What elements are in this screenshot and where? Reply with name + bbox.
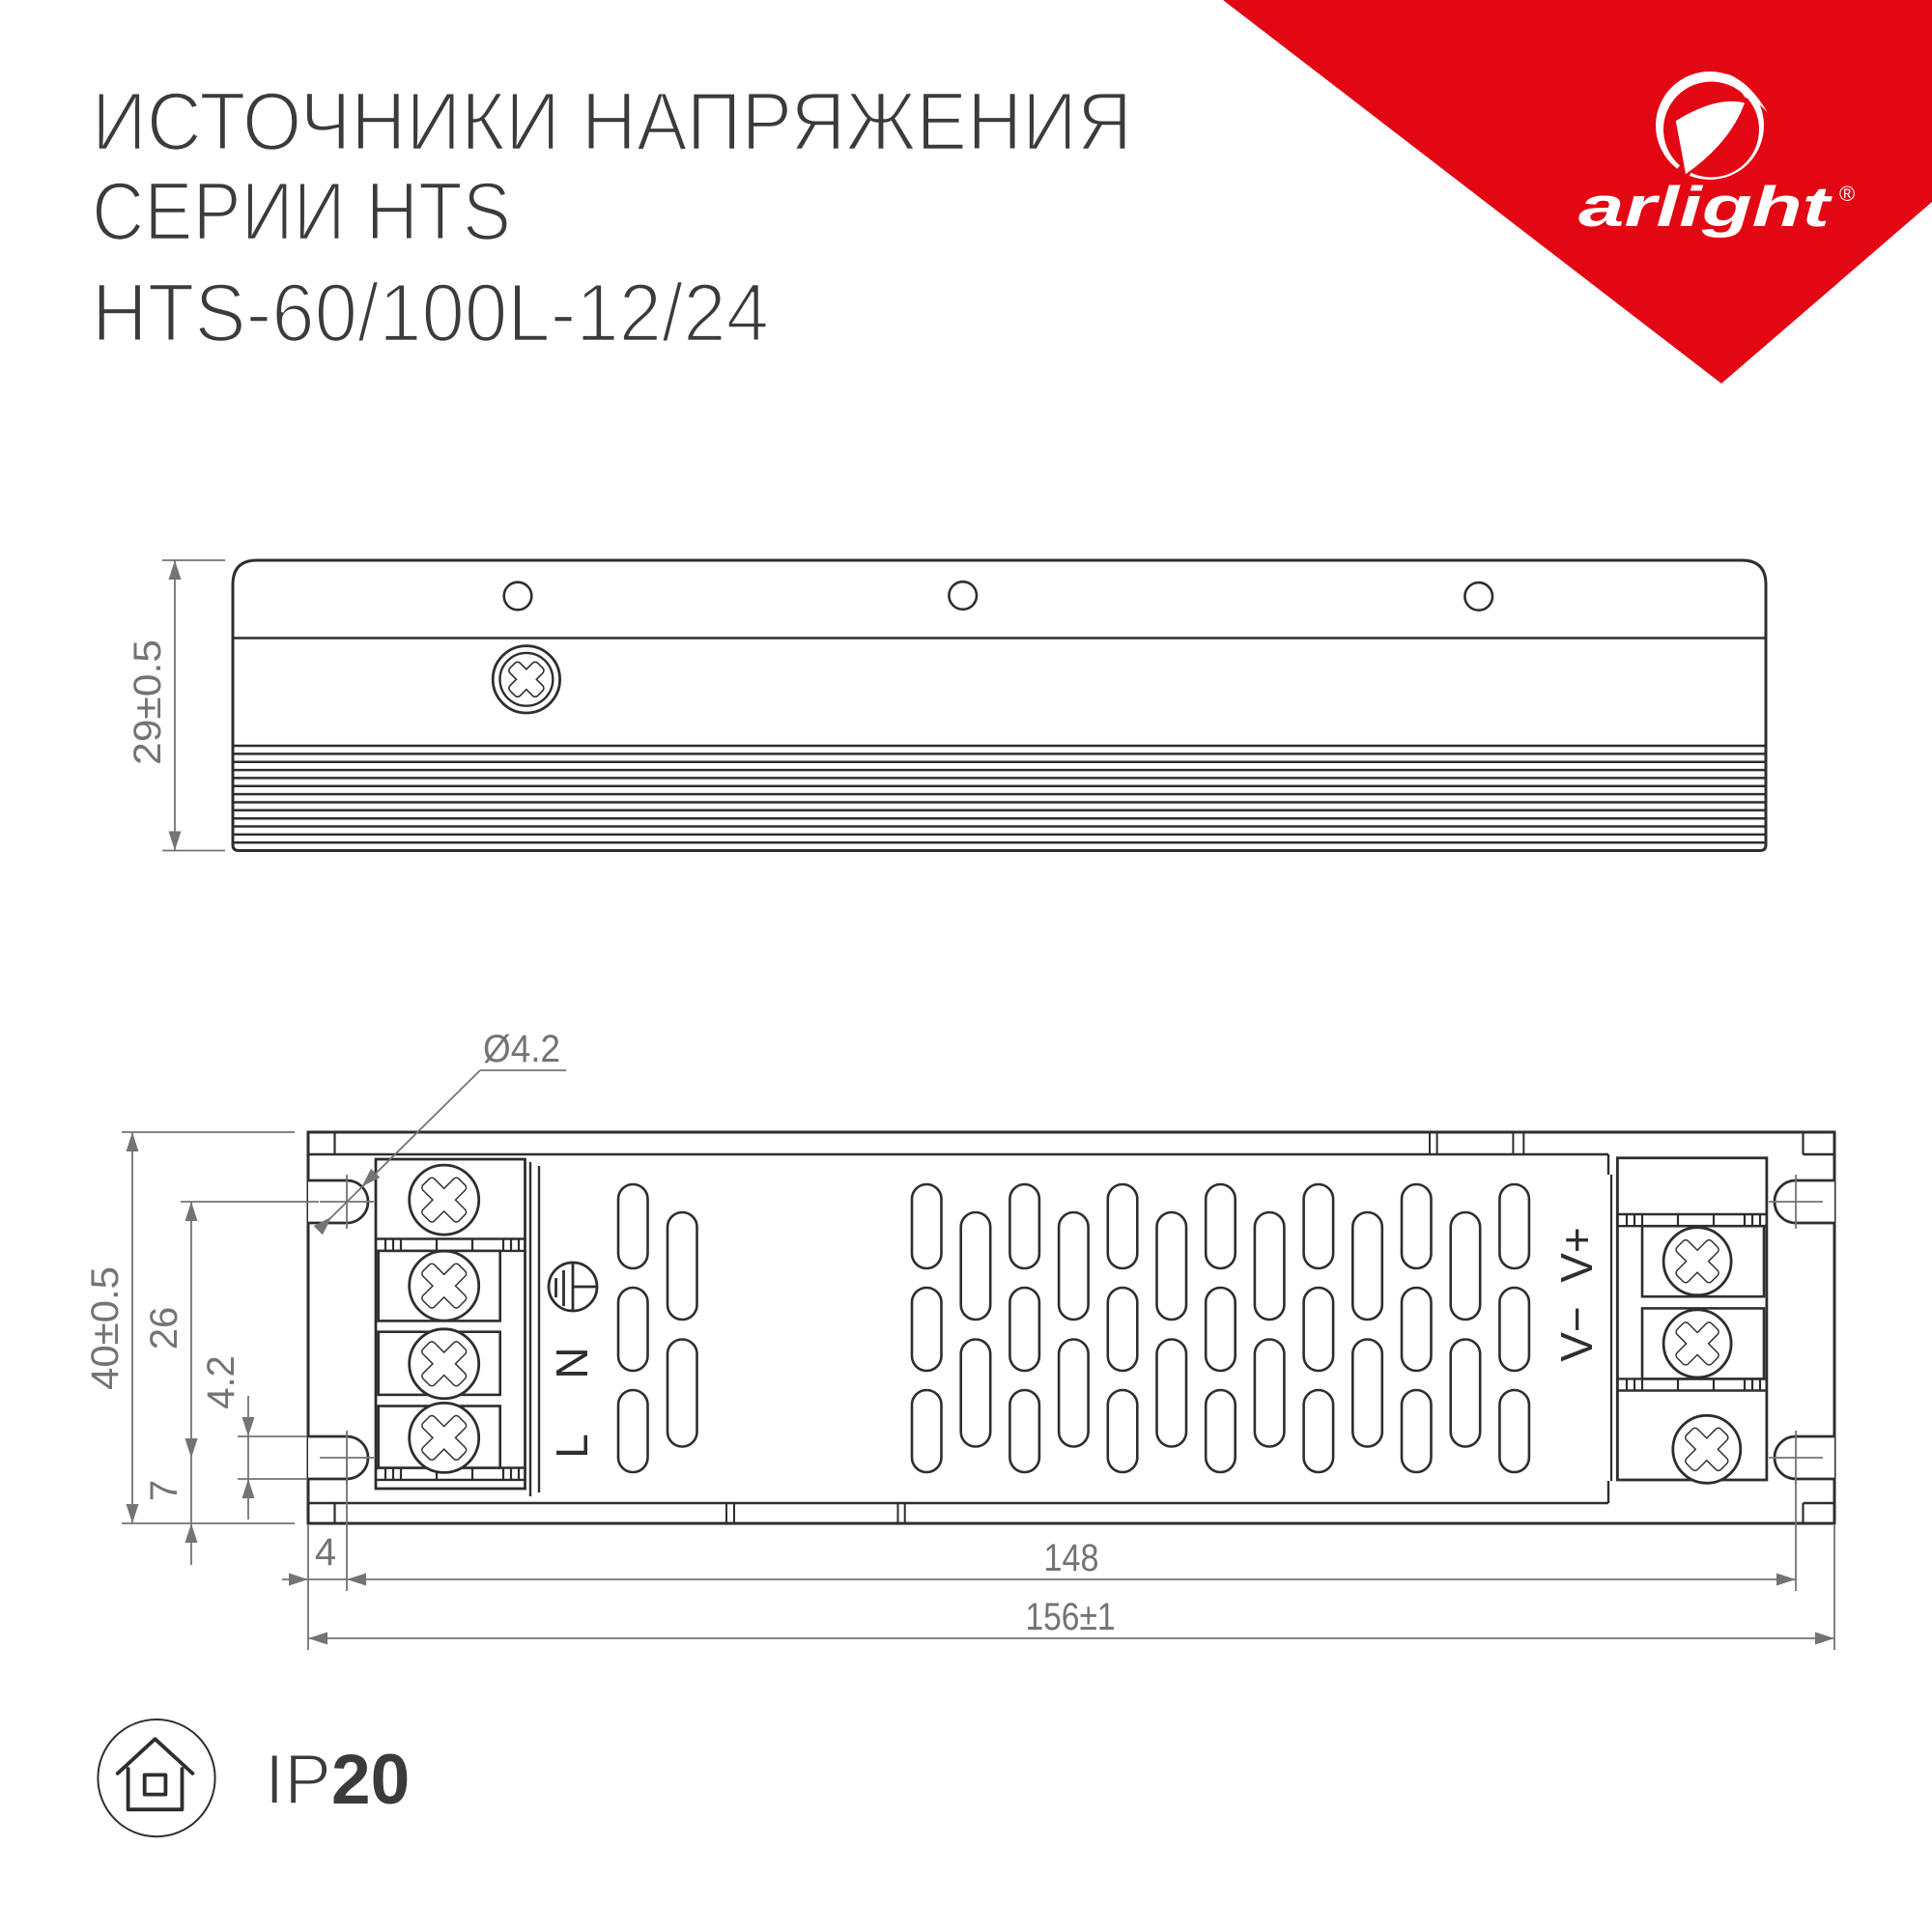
svg-text:N: N [547, 1347, 597, 1378]
svg-text:40±0.5: 40±0.5 [84, 1266, 127, 1390]
svg-text:V+: V+ [1551, 1227, 1602, 1283]
svg-text:V−: V− [1551, 1306, 1602, 1362]
svg-text:4: 4 [315, 1531, 336, 1574]
svg-text:4.2: 4.2 [200, 1355, 242, 1409]
svg-text:29±0.5: 29±0.5 [127, 639, 169, 765]
svg-text:arlight: arlight [1578, 176, 1833, 239]
svg-text:7: 7 [143, 1480, 185, 1501]
svg-text:148: 148 [1044, 1537, 1099, 1579]
svg-text:L: L [547, 1434, 597, 1459]
svg-text:Ø4.2: Ø4.2 [483, 1028, 560, 1070]
svg-text:IP20: IP20 [265, 1741, 410, 1819]
svg-text:156±1: 156±1 [1026, 1596, 1116, 1638]
svg-text:26: 26 [143, 1307, 185, 1350]
svg-text:ИСТОЧНИКИ НАПРЯЖЕНИЯ: ИСТОЧНИКИ НАПРЯЖЕНИЯ [92, 76, 1132, 168]
svg-text:СЕРИИ HTS: СЕРИИ HTS [92, 166, 511, 258]
svg-text:HTS-60/100L-12/24: HTS-60/100L-12/24 [92, 268, 769, 359]
svg-text:®: ® [1839, 182, 1855, 206]
